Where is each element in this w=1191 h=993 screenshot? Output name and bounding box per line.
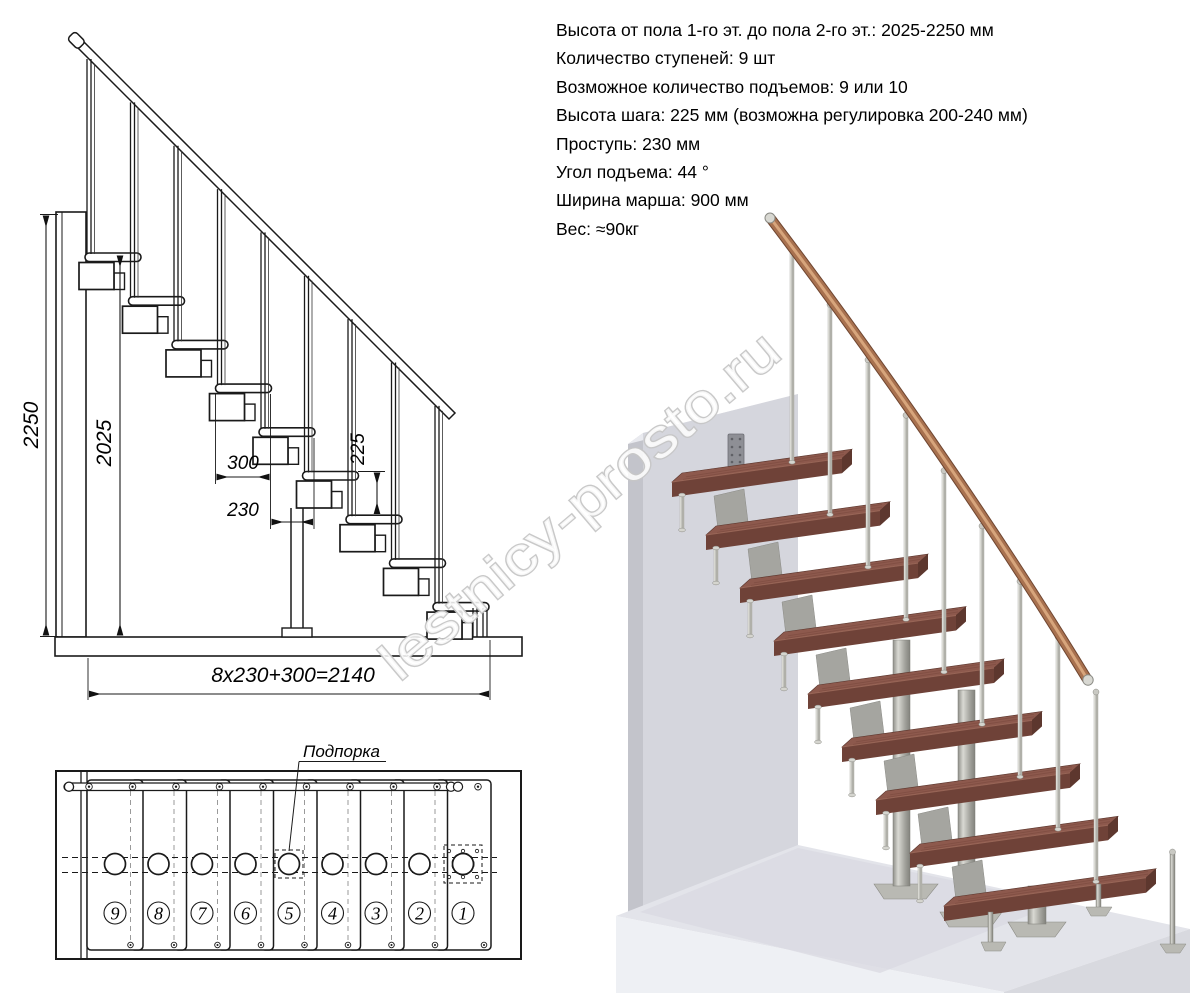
tread-side [390, 559, 446, 568]
tread-side [129, 297, 185, 306]
spec-line-rises: Возможное количество подъемов: 9 или 10 [556, 73, 1028, 101]
module-link [375, 535, 386, 552]
plan-step-number: 2 [415, 904, 424, 924]
side-steps-group [79, 59, 489, 639]
support-label-text: Подпорка [303, 742, 380, 761]
plan-stringer-joint [453, 854, 474, 875]
handrail-top-cap [765, 213, 775, 223]
tread-side [85, 253, 141, 262]
plan-stringer-joint [366, 854, 387, 875]
plan-step-number: 3 [371, 904, 381, 924]
plan-step-number: 7 [198, 904, 208, 924]
dim-tread-width: 300 [227, 453, 259, 474]
plan-view-drawing: 987654321 Подпорка [40, 735, 540, 985]
tread-side [216, 384, 272, 393]
module-box [427, 612, 462, 639]
wall-mount-plate [728, 434, 744, 467]
support-column-side [282, 508, 312, 637]
base-module-side [473, 608, 487, 637]
plan-stringer-joint [322, 854, 343, 875]
module-box [166, 350, 201, 377]
tread-side [259, 428, 315, 437]
plan-stringer-joint [148, 854, 169, 875]
module-link [288, 448, 299, 465]
spec-line-step-height: Высота шага: 225 мм (возможна регулировк… [556, 101, 1028, 129]
plan-step-number: 8 [154, 904, 163, 924]
plan-stringer-joint [235, 854, 256, 875]
module-box [384, 568, 419, 595]
dimension-2250: 2250 [20, 215, 58, 637]
dim-total-height: 2250 [20, 401, 43, 449]
plan-step-number: 6 [241, 904, 250, 924]
plan-step-number: 5 [285, 904, 294, 924]
module-box [210, 394, 245, 421]
module-box [123, 306, 158, 333]
tread-side [172, 340, 228, 349]
plan-stringer-joint [105, 854, 126, 875]
tread-side [433, 603, 489, 612]
plan-step-number: 1 [459, 904, 468, 924]
spec-line-angle: Угол подъема: 44 ° [556, 158, 1028, 186]
module-box [79, 263, 114, 290]
module-link [419, 579, 430, 596]
dim-total-run: 8x230+300=2140 [211, 664, 375, 687]
module-link [158, 317, 169, 334]
tread-side [303, 472, 359, 481]
module-link [114, 273, 125, 290]
plan-stringer-joint [192, 854, 213, 875]
module-link [462, 623, 473, 640]
dim-floor-height: 2025 [93, 419, 116, 467]
module-link [245, 404, 256, 421]
plan-handrail [64, 782, 481, 791]
module-link [332, 492, 343, 509]
side-elevation-drawing: 2250 2025 300 230 225 8x230+300=2140 [0, 0, 545, 730]
module-link [201, 360, 212, 377]
plan-stringer-joint [279, 854, 300, 875]
stair-drawing-page: Высота от пола 1-го эт. до пола 2-го эт.… [0, 0, 1191, 993]
handrail-bottom-cap [1083, 675, 1093, 685]
plan-stringer-joint [409, 854, 430, 875]
dimension-2025: 2025 [93, 256, 120, 635]
dim-step-run: 230 [226, 500, 259, 521]
module-box [340, 525, 375, 552]
plan-step-number: 4 [328, 904, 337, 924]
render-3d [600, 190, 1191, 993]
spec-line-steps: Количество ступеней: 9 шт [556, 44, 1028, 72]
spec-line-tread: Проступь: 230 мм [556, 130, 1028, 158]
spec-line-height: Высота от пола 1-го эт. до пола 2-го эт.… [556, 16, 1028, 44]
tread-side [346, 515, 402, 524]
dim-step-rise: 225 [348, 433, 369, 466]
plan-step-number: 9 [111, 904, 120, 924]
